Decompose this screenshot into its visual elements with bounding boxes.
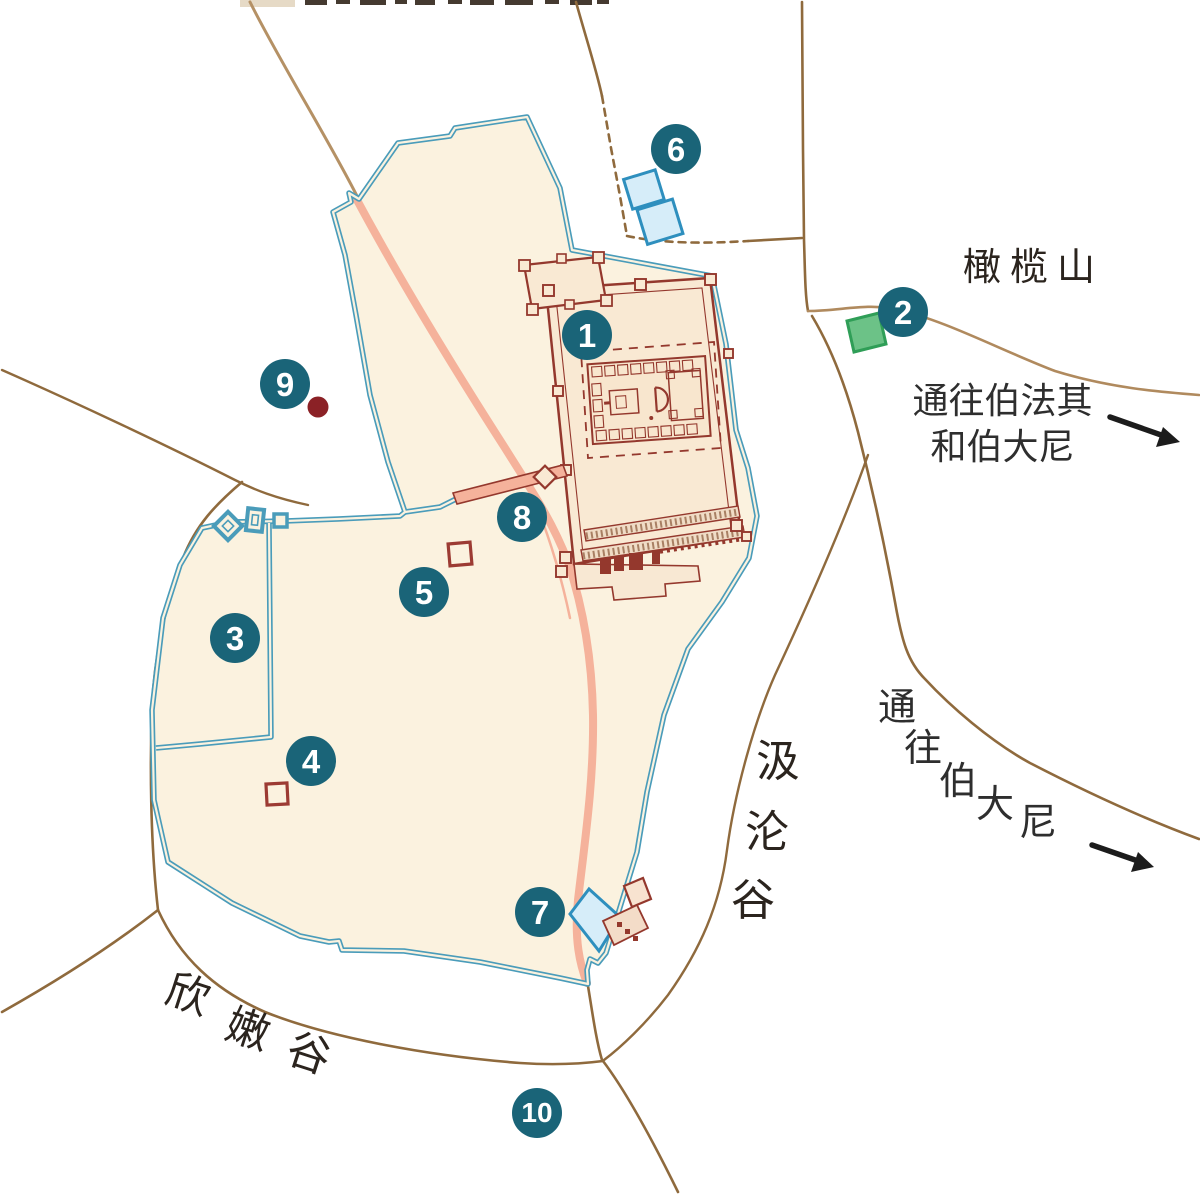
arrow-to-bethany bbox=[1092, 845, 1154, 872]
label-mount-of-olives: 橄榄山 bbox=[963, 236, 1104, 291]
inner-temple bbox=[587, 356, 710, 444]
label-to-bethphage-line2: 和伯大尼 bbox=[900, 430, 1105, 466]
map-marker-6: 6 bbox=[651, 124, 701, 174]
road-south-gate bbox=[588, 986, 602, 1060]
jerusalem-historical-map: 1 2 3 4 5 6 7 8 9 10 橄榄山 通往伯法其 和伯大尼 通 往 … bbox=[0, 0, 1200, 1200]
map-drawing bbox=[0, 0, 1200, 1200]
map-marker-7: 7 bbox=[515, 887, 565, 937]
map-marker-3: 3 bbox=[210, 613, 260, 663]
road-north-dashed bbox=[602, 96, 627, 236]
map-marker-8: 8 bbox=[497, 492, 547, 542]
map-marker-4: 4 bbox=[286, 736, 336, 786]
label-to-bethphage-line1: 通往伯法其 bbox=[900, 384, 1105, 420]
building-square-near-5 bbox=[448, 542, 472, 566]
label-to-bethphage-and-bethany: 通往伯法其 和伯大尼 bbox=[900, 384, 1105, 466]
cropped-top-text-fragments bbox=[240, 0, 609, 7]
map-marker-2: 2 bbox=[878, 287, 928, 337]
building-square-near-4 bbox=[266, 783, 288, 805]
road-northwest bbox=[250, 2, 358, 198]
road-southwest bbox=[2, 910, 158, 1012]
road-north bbox=[576, 2, 602, 96]
arrow-to-bethphage bbox=[1110, 417, 1180, 447]
road-southeast bbox=[603, 1061, 678, 1192]
bethesda-pools bbox=[624, 168, 683, 246]
map-marker-10: 10 bbox=[512, 1088, 562, 1138]
map-marker-1: 1 bbox=[562, 310, 612, 360]
site-dot-near-9 bbox=[308, 397, 329, 418]
map-marker-9: 9 bbox=[260, 359, 310, 409]
map-marker-5: 5 bbox=[399, 567, 449, 617]
road-northeast-vertical bbox=[802, 2, 808, 311]
